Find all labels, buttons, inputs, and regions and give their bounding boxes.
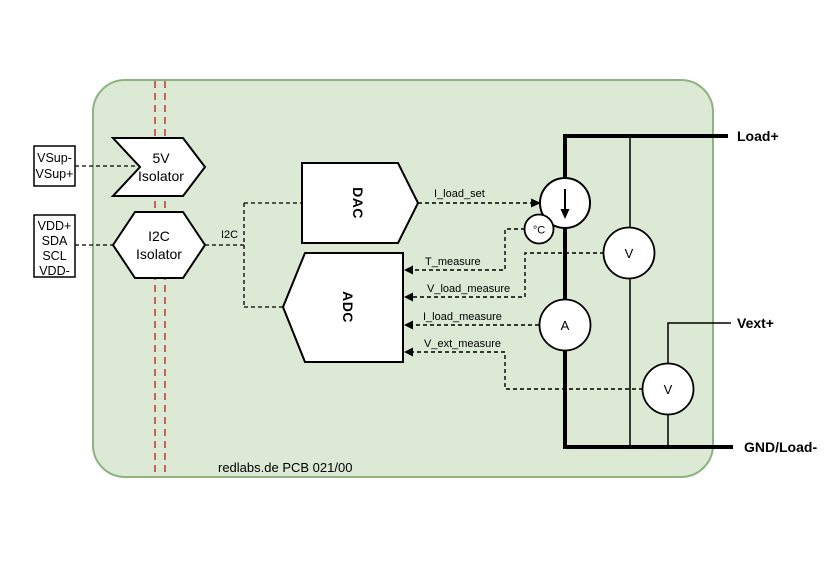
gnd-load-minus-terminal-label: GND/Load-	[744, 439, 817, 455]
v-ext-measure-label: V_ext_measure	[424, 338, 501, 350]
load-voltmeter-label: V	[625, 246, 634, 261]
t-measure-label: T_measure	[425, 256, 481, 268]
adc-label: ADC	[340, 291, 356, 323]
diagram-canvas: VSup- VSup+ VDD+ SDA SCL VDD- 5V Isolato…	[0, 0, 827, 583]
dac-block: DAC	[302, 163, 418, 243]
isolator-i2c-title: I2C	[148, 228, 170, 244]
i-load-set-label: I_load_set	[434, 188, 485, 200]
vdd-box: VDD+ SDA SCL VDD-	[34, 215, 75, 278]
circuit-diagram: VSup- VSup+ VDD+ SDA SCL VDD- 5V Isolato…	[0, 0, 827, 583]
vdd-minus-label: VDD-	[39, 264, 70, 278]
dac-label: DAC	[350, 187, 366, 219]
i-load-measure-label: I_load_measure	[423, 311, 502, 323]
isolator-5v-title: 5V	[152, 150, 170, 166]
vsup-plus-label: VSup+	[36, 167, 74, 181]
temp-sensor: °C	[525, 215, 554, 244]
vsup-minus-label: VSup-	[37, 151, 72, 165]
isolator-5v-subtitle: Isolator	[138, 168, 184, 184]
isolator-i2c-subtitle: Isolator	[136, 246, 182, 262]
load-plus-terminal-label: Load+	[737, 128, 779, 144]
ammeter-label: A	[561, 318, 570, 333]
board-title: redlabs.de PCB 021/00	[218, 460, 352, 475]
vdd-plus-label: VDD+	[38, 219, 72, 233]
temp-sensor-label: °C	[533, 225, 545, 237]
vsup-box: VSup- VSup+	[34, 146, 75, 186]
ammeter: A	[540, 300, 591, 351]
v-load-measure-label: V_load_measure	[427, 283, 510, 295]
i2c-bus-label: I2C	[221, 229, 238, 241]
scl-label: SCL	[42, 249, 66, 263]
vext-plus-terminal-label: Vext+	[737, 315, 774, 331]
sda-label: SDA	[42, 234, 68, 248]
ext-voltmeter: V	[643, 364, 694, 415]
adc-block: ADC	[283, 253, 403, 362]
load-voltmeter: V	[604, 228, 655, 279]
ext-voltmeter-label: V	[664, 382, 673, 397]
